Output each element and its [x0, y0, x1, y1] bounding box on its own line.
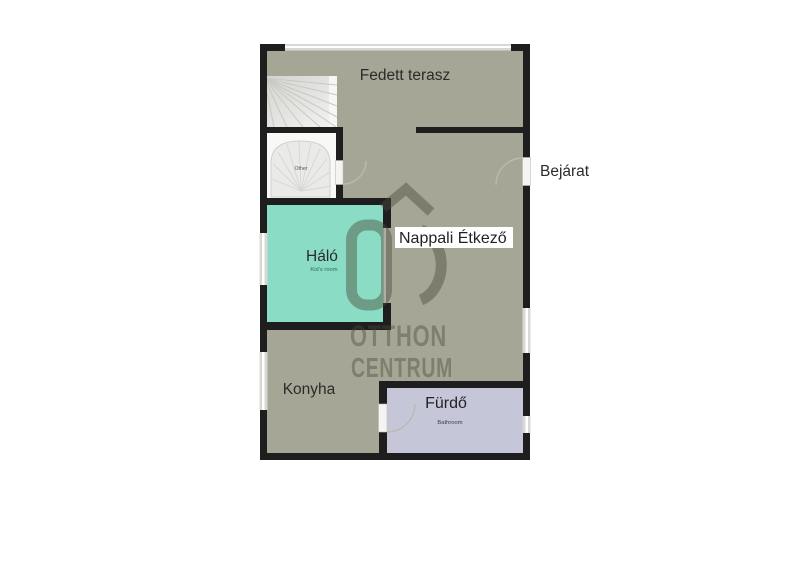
bedroom-sublabel: Kid's room [310, 267, 337, 273]
window-glass [262, 352, 265, 410]
entrance-door-leaf [523, 158, 531, 186]
bathroom-sublabel: Bathroom [437, 420, 462, 426]
wall-segment [523, 44, 530, 460]
window-glass [526, 416, 529, 433]
floorplan-canvas: OTTHON CENTRUM Fedett terasz Nappali Étk… [0, 0, 800, 565]
wall-segment [260, 198, 391, 205]
bedroom-label: Háló [306, 248, 338, 265]
watermark-line1: OTTHON [350, 320, 447, 353]
living-dining-label: Nappali Étkező [399, 228, 507, 247]
watermark-line2: CENTRUM [351, 352, 453, 383]
bathroom-label: Fürdő [425, 395, 467, 412]
terrace-label: Fedett terasz [360, 67, 450, 84]
bathroom-door-leaf [379, 404, 388, 432]
entrance-label: Bejárat [540, 163, 590, 180]
wall-segment [379, 381, 387, 404]
window-glass [526, 308, 529, 353]
wall-segment [260, 453, 530, 460]
wall-segment [416, 127, 530, 133]
floorplan-image: OTTHON CENTRUM Fedett terasz Nappali Étk… [0, 0, 800, 565]
kitchen-label: Konyha [283, 381, 336, 398]
stair-room-label: Other [295, 166, 308, 172]
stairs-icon [262, 76, 337, 127]
window-glass [262, 233, 265, 285]
wall-segment [260, 127, 343, 133]
window-glass [285, 46, 511, 48]
wall-segment [379, 432, 387, 460]
stair-room-door-leaf [336, 161, 344, 185]
